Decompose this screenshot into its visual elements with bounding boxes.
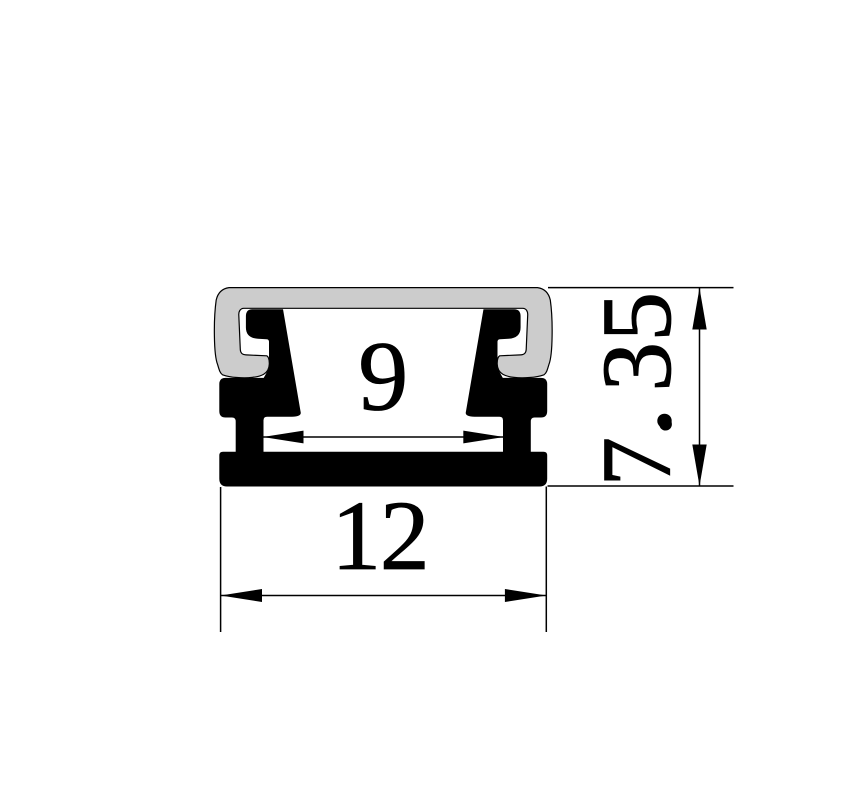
svg-text:9: 9 <box>358 320 408 431</box>
svg-text:7.35: 7.35 <box>581 292 692 487</box>
svg-text:12: 12 <box>331 480 428 591</box>
